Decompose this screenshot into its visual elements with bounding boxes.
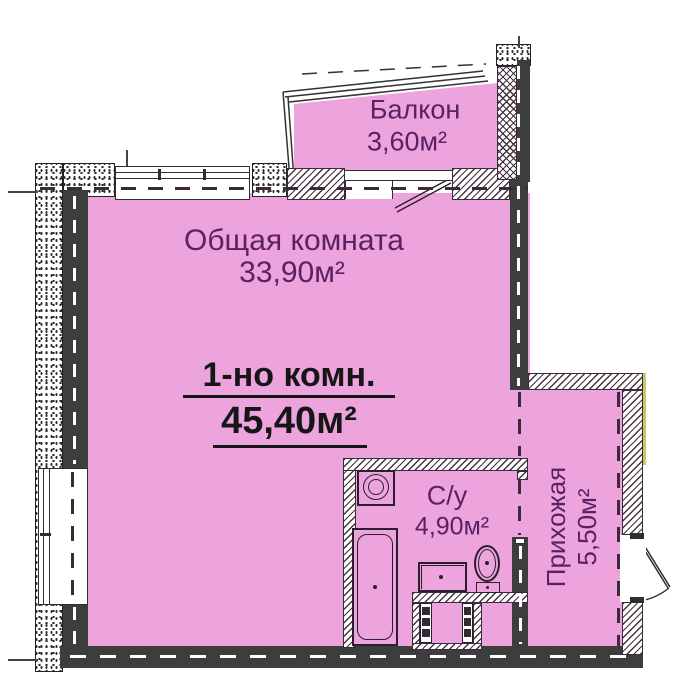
window-top-mullion-1 [158, 169, 161, 180]
bathroom-area-label: 4,90м² [415, 515, 489, 540]
wall-bathroom-right-cap [515, 538, 525, 544]
floor-plan: Балкон 3,60м² Общая комната 33,90м² 1-но… [0, 0, 696, 700]
entrance-jamb-top [630, 533, 644, 539]
entrance-door-opening [620, 535, 646, 602]
hallway-area-label: 5,50м² [572, 467, 603, 587]
left-wall-dashes-lower [73, 607, 76, 645]
balcony-label: Балкон [370, 97, 461, 124]
balcony-opening-sill [345, 170, 452, 181]
total-area-label: 45,40м² [221, 402, 357, 440]
bottom-wall-dashes [70, 655, 635, 658]
hallway-right-edge-dashes [617, 392, 620, 646]
hallway-label-group: Прихожая 5,50м² [541, 467, 603, 587]
balcony-window-opening [345, 181, 393, 199]
total-area-underline [213, 445, 367, 448]
window-top-mullion-2 [203, 169, 206, 180]
hallway-opening-dashes [518, 392, 521, 456]
cabinet-ladder-left-rung-2 [422, 618, 430, 626]
window-top-frame-line-1 [116, 172, 249, 173]
window-left-frame-line-2 [49, 469, 50, 604]
axis-line-top [126, 150, 128, 166]
living-room-area-label: 33,90м² [239, 258, 345, 288]
bathroom-wall-dashes [519, 546, 522, 644]
toilet-base-dot [486, 586, 489, 589]
living-room-label: Общая комната [184, 226, 404, 256]
cabinet-ladder-right-rung-1 [464, 607, 471, 615]
bathroom-label: С/у [427, 483, 468, 510]
axis-line-top-right [518, 36, 520, 48]
bathroom-door-dashes [518, 479, 521, 535]
wall-outer-accent-line [643, 373, 646, 465]
sink-drain-icon [439, 575, 443, 579]
hallway-label: Прихожая [541, 467, 572, 587]
balcony-area-label: 3,60м² [367, 129, 447, 156]
balcony-door-leaf [395, 179, 451, 212]
washing-machine-drum-inner-icon [368, 479, 384, 495]
wall-right-outer-lower [622, 602, 643, 655]
cabinet-ladder-right-rung-2 [464, 618, 471, 626]
wall-balcony-right-hatch [497, 66, 517, 180]
window-top-frame-line-2 [116, 178, 249, 179]
window-left-mullion [40, 533, 51, 536]
axis-line-left-bottom [8, 659, 38, 661]
window-left [38, 468, 88, 605]
entrance-jamb-bottom [630, 597, 644, 603]
wall-bathroom-inner [412, 592, 528, 603]
cabinet-ladder-left-rung-1 [422, 607, 430, 615]
wall-right-outer-upper [622, 390, 643, 535]
window-left-frame-line-1 [43, 469, 44, 604]
top-wall-axis-dashes [40, 187, 528, 190]
balcony-glazing-dashed-line [302, 64, 486, 74]
cabinet-ladder-left-rung-3 [422, 629, 430, 637]
left-window-axis-dashes [71, 472, 74, 601]
wall-hallway-top [528, 373, 643, 390]
bathtub-drain-icon [373, 585, 377, 589]
apartment-type-underline [183, 395, 395, 398]
left-wall-dashes-upper [73, 196, 76, 464]
wall-top-pier-block [252, 163, 287, 197]
toilet-drain-icon [485, 561, 489, 565]
axis-line-left-top [8, 191, 38, 193]
wall-top-pier-a [287, 168, 345, 200]
cabinet-frame-bottom [412, 643, 482, 650]
apartment-type-label: 1-но комн. [202, 358, 375, 392]
cabinet-ladder-right-rung-3 [464, 629, 471, 637]
right-wall-dashes [517, 66, 520, 386]
